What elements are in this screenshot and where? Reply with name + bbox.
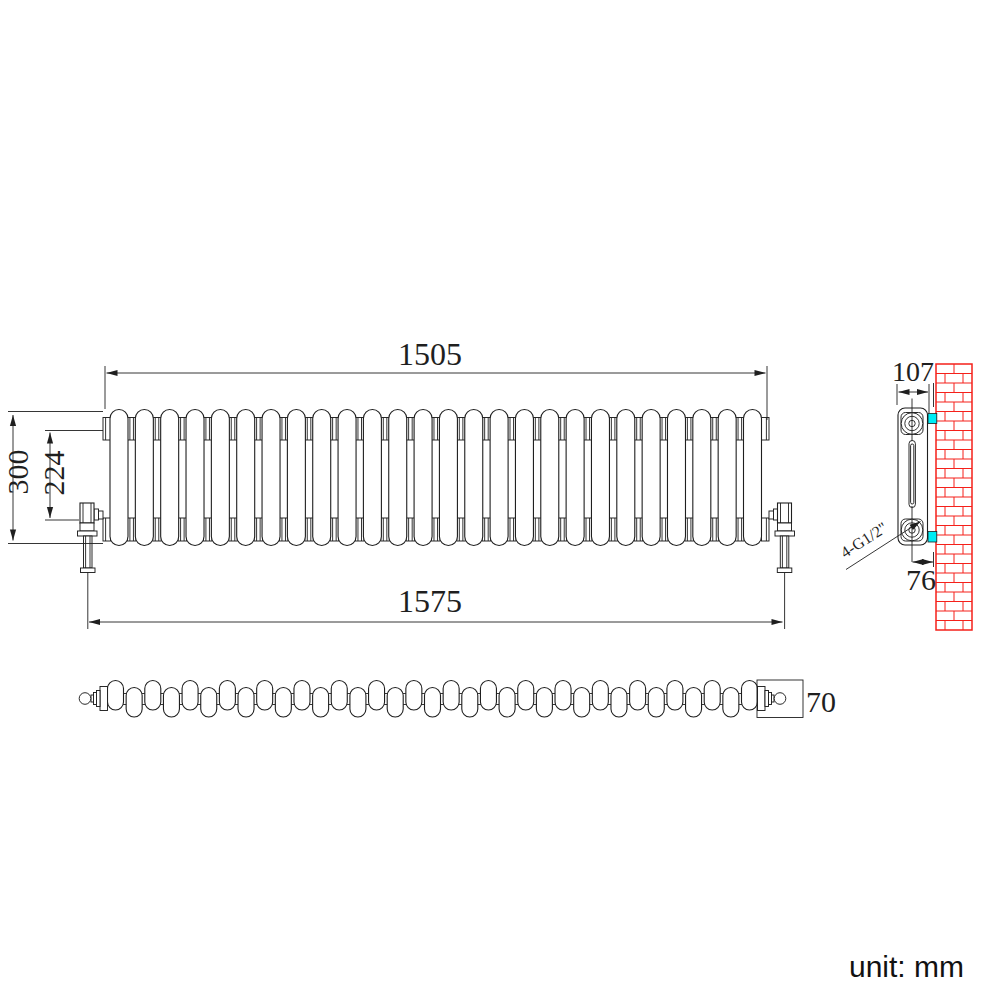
top-capsule-back bbox=[686, 688, 702, 718]
section-collar bbox=[508, 518, 517, 541]
front-column bbox=[617, 410, 635, 546]
section-collar bbox=[330, 518, 339, 541]
section-collar bbox=[279, 418, 288, 441]
front-column bbox=[287, 410, 305, 546]
dim-1575: 1575 bbox=[89, 583, 783, 622]
section-collar bbox=[127, 518, 136, 541]
top-capsule-back bbox=[499, 688, 515, 718]
section-collar bbox=[533, 418, 542, 441]
dim-1505: 1505 bbox=[105, 336, 767, 420]
section-collar bbox=[584, 518, 593, 541]
top-right-end bbox=[758, 687, 786, 711]
radiator-dimension-drawing: 1505 1575 300 224 bbox=[0, 0, 1001, 1001]
front-column bbox=[110, 410, 128, 546]
technical-drawing-canvas: 1505 1575 300 224 bbox=[0, 0, 1001, 1001]
section-collar bbox=[609, 418, 618, 441]
section-collar bbox=[381, 418, 390, 441]
section-collar bbox=[685, 518, 694, 541]
dim-107: 107 bbox=[892, 356, 934, 413]
section-collar bbox=[482, 518, 491, 541]
top-capsule-front bbox=[145, 681, 161, 711]
section-collar bbox=[584, 418, 593, 441]
front-column bbox=[693, 410, 711, 546]
front-column bbox=[591, 410, 609, 546]
top-capsule-front bbox=[294, 681, 310, 711]
section-collar bbox=[431, 418, 440, 441]
section-collar bbox=[153, 418, 162, 441]
dim-1575-label: 1575 bbox=[398, 583, 462, 619]
top-capsule-back bbox=[163, 688, 179, 718]
front-column bbox=[541, 410, 559, 546]
section-collar bbox=[710, 418, 719, 441]
front-column bbox=[490, 410, 508, 546]
dim-70-label: 70 bbox=[806, 685, 836, 718]
front-column bbox=[439, 410, 457, 546]
top-capsule-front bbox=[555, 681, 571, 711]
top-capsule-back bbox=[313, 688, 329, 718]
front-column bbox=[363, 410, 381, 546]
unit-note: unit: mm bbox=[849, 950, 964, 983]
top-capsule-front bbox=[257, 681, 273, 711]
section-collar bbox=[508, 418, 517, 441]
front-column bbox=[211, 410, 229, 546]
front-column bbox=[186, 410, 204, 546]
dim-76: 76 bbox=[906, 552, 936, 596]
section-collar bbox=[153, 518, 162, 541]
dim-300-label: 300 bbox=[1, 450, 34, 495]
front-column bbox=[515, 410, 533, 546]
section-collar bbox=[634, 418, 643, 441]
front-column bbox=[642, 410, 660, 546]
top-capsule-back bbox=[574, 688, 590, 718]
side-view bbox=[898, 399, 937, 563]
section-collar bbox=[533, 518, 542, 541]
front-column bbox=[135, 410, 153, 546]
section-collar bbox=[127, 418, 136, 441]
section-collar bbox=[406, 418, 415, 441]
top-capsule-front bbox=[369, 681, 385, 711]
top-capsule-back bbox=[536, 688, 552, 718]
section-collar bbox=[203, 418, 212, 441]
top-capsule-front bbox=[331, 681, 347, 711]
top-capsule-front bbox=[742, 681, 758, 711]
section-collar bbox=[634, 518, 643, 541]
top-capsule-front bbox=[667, 681, 683, 711]
top-capsule-back bbox=[723, 688, 739, 718]
top-view bbox=[79, 681, 786, 718]
front-column bbox=[414, 410, 432, 546]
left-valve bbox=[78, 503, 104, 629]
top-view-sections bbox=[108, 681, 758, 718]
front-column bbox=[465, 410, 483, 546]
top-capsule-back bbox=[611, 688, 627, 718]
section-collar bbox=[660, 418, 669, 441]
top-capsule-back bbox=[238, 688, 254, 718]
dim-224-label: 224 bbox=[37, 451, 70, 496]
top-capsule-back bbox=[387, 688, 403, 718]
section-collar bbox=[609, 518, 618, 541]
front-column bbox=[237, 410, 255, 546]
wall-bracket-bottom bbox=[928, 532, 937, 543]
front-column bbox=[338, 410, 356, 546]
top-capsule-front bbox=[443, 681, 459, 711]
section-collar bbox=[330, 418, 339, 441]
top-capsule-front bbox=[704, 681, 720, 711]
front-column bbox=[744, 410, 762, 546]
top-capsule-back bbox=[425, 688, 441, 718]
front-column bbox=[313, 410, 331, 546]
top-capsule-back bbox=[648, 688, 664, 718]
top-capsule-front bbox=[518, 681, 534, 711]
section-collar bbox=[482, 418, 491, 441]
top-capsule-front bbox=[108, 681, 124, 711]
wall-bracket-top bbox=[928, 414, 937, 424]
top-capsule-back bbox=[350, 688, 366, 718]
section-collar bbox=[558, 518, 567, 541]
thread-callout-label: 4-G1/2" bbox=[837, 519, 890, 561]
front-column bbox=[718, 410, 736, 546]
dim-107-label: 107 bbox=[892, 356, 934, 387]
dim-76-label: 76 bbox=[906, 563, 936, 596]
front-column bbox=[161, 410, 179, 546]
section-collar bbox=[305, 418, 314, 441]
top-left-end bbox=[79, 687, 107, 711]
top-capsule-back bbox=[275, 688, 291, 718]
section-collar bbox=[305, 518, 314, 541]
section-collar bbox=[736, 518, 745, 541]
right-valve bbox=[769, 503, 795, 629]
section-collar bbox=[254, 518, 263, 541]
top-capsule-front bbox=[406, 681, 422, 711]
section-collar bbox=[457, 518, 466, 541]
dim-1505-label: 1505 bbox=[398, 336, 462, 372]
top-capsule-front bbox=[182, 681, 198, 711]
section-collar bbox=[710, 518, 719, 541]
front-column bbox=[389, 410, 407, 546]
section-collar bbox=[406, 518, 415, 541]
top-capsule-back bbox=[201, 688, 217, 718]
front-column bbox=[566, 410, 584, 546]
section-collar bbox=[457, 418, 466, 441]
top-capsule-back bbox=[462, 688, 478, 718]
section-collar bbox=[355, 518, 364, 541]
top-capsule-front bbox=[592, 681, 608, 711]
front-column bbox=[262, 410, 280, 546]
section-collar bbox=[660, 518, 669, 541]
section-collar bbox=[203, 518, 212, 541]
section-collar bbox=[178, 418, 187, 441]
section-collar bbox=[254, 418, 263, 441]
section-collar bbox=[279, 518, 288, 541]
top-capsule-front bbox=[219, 681, 235, 711]
section-collar bbox=[229, 418, 238, 441]
section-collar bbox=[431, 518, 440, 541]
top-capsule-back bbox=[126, 688, 142, 718]
section-collar bbox=[558, 418, 567, 441]
brick-wall bbox=[936, 364, 972, 630]
front-column bbox=[667, 410, 685, 546]
section-collar bbox=[355, 418, 364, 441]
top-capsule-front bbox=[630, 681, 646, 711]
section-collar bbox=[178, 518, 187, 541]
section-collar bbox=[229, 518, 238, 541]
section-collar bbox=[381, 518, 390, 541]
top-capsule-front bbox=[480, 681, 496, 711]
section-collar bbox=[736, 418, 745, 441]
section-collar bbox=[685, 418, 694, 441]
